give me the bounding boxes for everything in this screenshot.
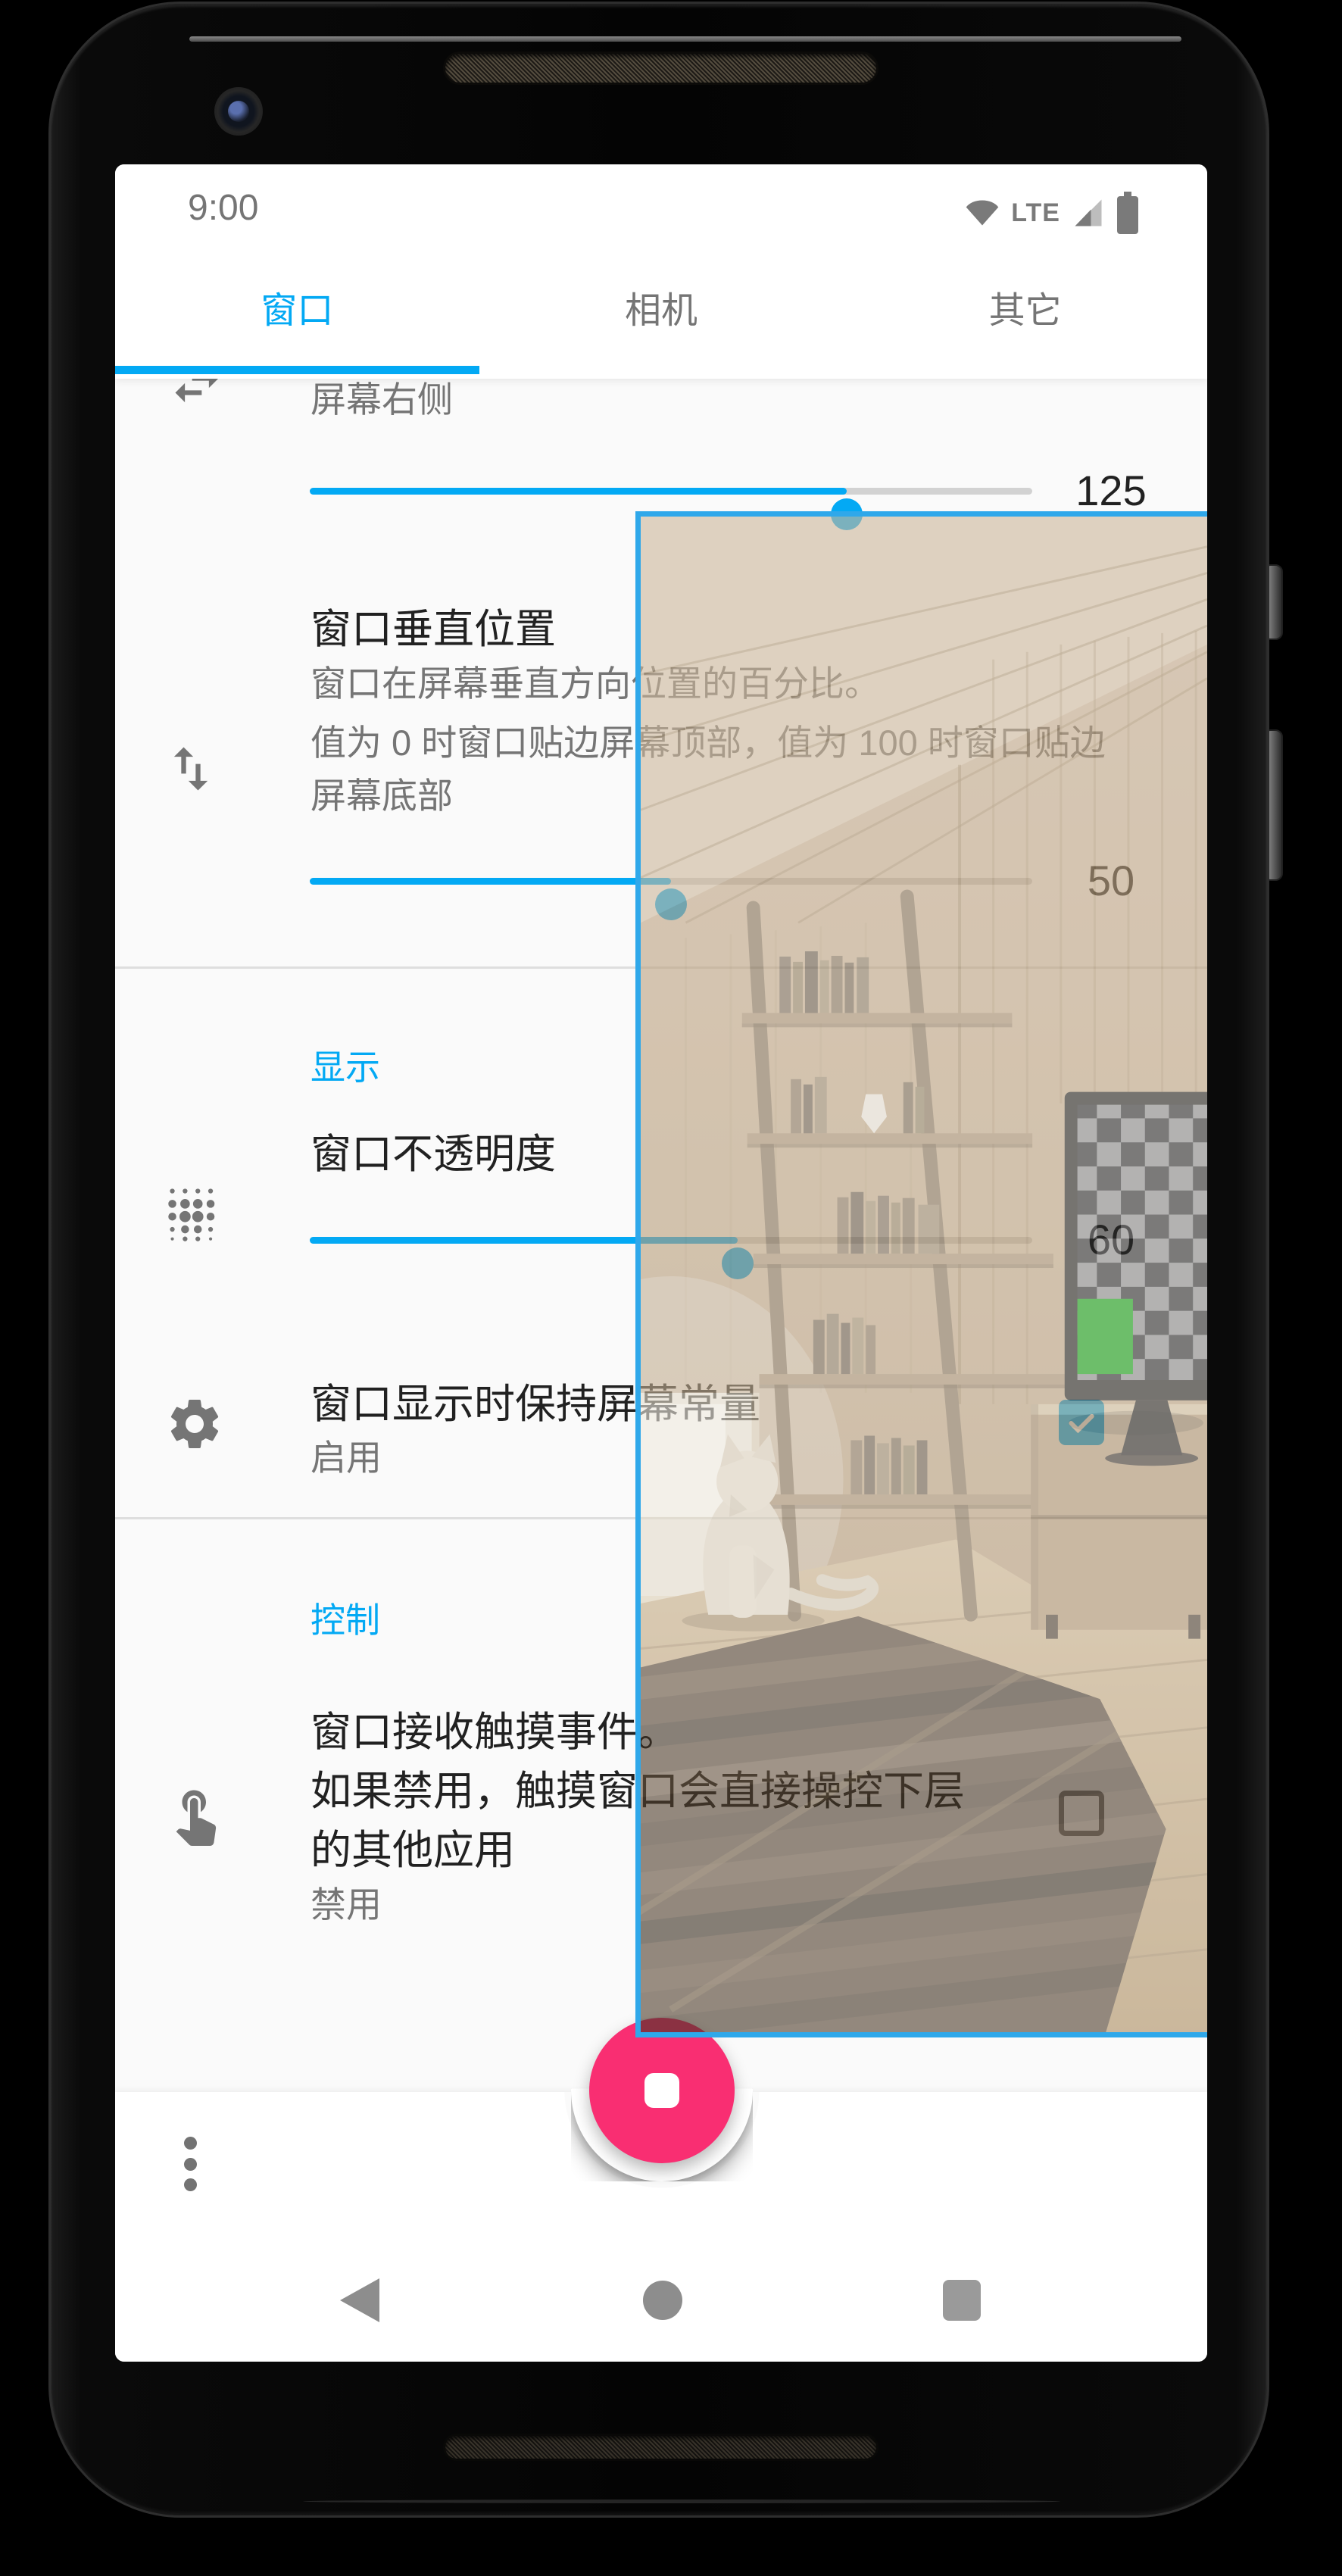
status-clock: 9:00 xyxy=(188,187,258,229)
slider-fill xyxy=(310,878,671,885)
camera-preview-image xyxy=(641,517,1207,2032)
wifi-icon xyxy=(966,196,999,229)
horizontal-position-subtitle: 屏幕右侧 xyxy=(311,379,453,421)
section-control: 控制 xyxy=(311,1593,380,1643)
phone-rim-highlight xyxy=(189,36,1181,42)
navigation-bar xyxy=(115,2262,1207,2353)
camera-lens-icon xyxy=(228,101,249,122)
touch-state: 禁用 xyxy=(311,1884,382,1926)
slider-track[interactable] xyxy=(310,488,1032,495)
vertical-position-title: 窗口垂直位置 xyxy=(311,606,556,653)
tab-window[interactable]: 窗口 xyxy=(115,248,479,366)
floating-camera-preview-window[interactable] xyxy=(635,511,1207,2037)
status-icons: LTE xyxy=(966,192,1139,234)
gear-icon xyxy=(164,1394,225,1458)
stop-icon xyxy=(644,2073,679,2108)
swap-vertical-icon xyxy=(162,740,220,801)
active-tab-underline xyxy=(115,366,479,374)
stop-recording-fab[interactable] xyxy=(589,2018,735,2163)
overflow-menu-icon[interactable] xyxy=(177,2137,203,2191)
signal-icon xyxy=(1072,196,1104,229)
slider-value: 125 xyxy=(1054,465,1168,517)
phone-rim-highlight-bottom xyxy=(303,2500,1060,2503)
touch-title-line1: 窗口接收触摸事件。 xyxy=(311,1709,679,1756)
battery-icon xyxy=(1116,192,1139,234)
section-display: 显示 xyxy=(311,1040,380,1090)
recents-icon[interactable] xyxy=(943,2280,981,2321)
tab-camera[interactable]: 相机 xyxy=(479,248,844,366)
phone-screen: 屏幕右侧 125 窗口垂直位置 窗口在屏幕垂直方向位置的百分比。 值为 0 时窗… xyxy=(115,164,1207,2362)
app-bar: 9:00 LTE 窗口 相机 其它 xyxy=(115,164,1207,379)
bottom-speaker xyxy=(443,2434,879,2461)
horizontal-position-slider: 125 xyxy=(115,465,1207,517)
keep-screen-state: 启用 xyxy=(311,1437,382,1479)
network-type-label: LTE xyxy=(1011,198,1060,228)
slider-fill xyxy=(310,488,847,495)
earpiece-speaker xyxy=(443,52,879,85)
vertical-position-desc3: 屏幕底部 xyxy=(311,775,453,817)
screenshot-root: 屏幕右侧 125 窗口垂直位置 窗口在屏幕垂直方向位置的百分比。 值为 0 时窗… xyxy=(0,0,1342,2576)
home-icon[interactable] xyxy=(643,2281,682,2320)
touch-title-line3: 的其他应用 xyxy=(311,1827,515,1874)
opacity-title: 窗口不透明度 xyxy=(311,1131,556,1178)
front-camera xyxy=(214,87,263,136)
touch-icon xyxy=(164,1782,227,1850)
tab-other[interactable]: 其它 xyxy=(843,248,1207,366)
back-icon[interactable] xyxy=(340,2278,379,2326)
tab-row: 窗口 相机 其它 xyxy=(115,248,1207,366)
